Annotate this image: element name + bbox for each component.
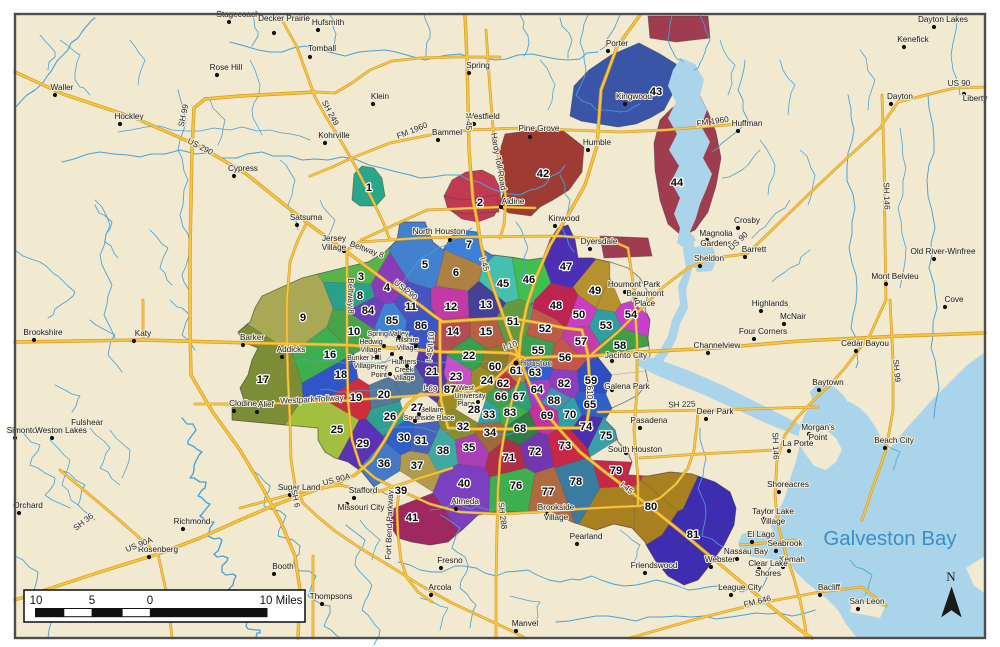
svg-text:10 Miles: 10 Miles	[260, 595, 303, 607]
svg-text:North Houston: North Houston	[413, 227, 466, 236]
svg-text:South Houston: South Houston	[608, 445, 663, 454]
svg-text:78: 78	[570, 476, 582, 488]
svg-text:Galveston Bay: Galveston Bay	[823, 527, 957, 550]
svg-text:17: 17	[257, 374, 269, 386]
svg-text:6: 6	[453, 267, 459, 279]
svg-text:Dyersdale: Dyersdale	[581, 237, 618, 246]
svg-text:16: 16	[324, 349, 336, 361]
svg-text:15: 15	[480, 326, 492, 338]
svg-text:Baytown: Baytown	[812, 378, 844, 387]
svg-text:22: 22	[463, 350, 475, 362]
svg-text:Humble: Humble	[583, 138, 612, 147]
svg-text:69: 69	[541, 410, 553, 422]
svg-text:Weston Lakes: Weston Lakes	[35, 426, 87, 435]
svg-text:76: 76	[510, 480, 522, 492]
svg-text:34: 34	[484, 427, 497, 439]
svg-text:42: 42	[537, 168, 549, 180]
svg-text:Brookside: Brookside	[538, 503, 575, 512]
svg-text:Nassau Bay: Nassau Bay	[724, 547, 769, 556]
svg-text:Beltway 8: Beltway 8	[346, 278, 355, 314]
svg-text:4: 4	[384, 282, 391, 294]
svg-text:Dayton: Dayton	[887, 92, 913, 101]
svg-text:47: 47	[560, 261, 572, 273]
svg-text:46: 46	[523, 274, 535, 286]
svg-text:Rose Hill: Rose Hill	[210, 63, 243, 72]
svg-text:Piney: Piney	[370, 364, 388, 371]
svg-text:Alief: Alief	[258, 400, 275, 409]
svg-text:Point: Point	[371, 372, 387, 379]
svg-text:El Lago: El Lago	[747, 530, 775, 539]
svg-text:Taylor Lake: Taylor Lake	[752, 507, 794, 516]
svg-text:Stafford: Stafford	[349, 486, 378, 495]
svg-text:Seabrook: Seabrook	[767, 539, 803, 548]
svg-text:88: 88	[548, 395, 560, 407]
svg-text:87: 87	[444, 384, 456, 396]
svg-text:49: 49	[589, 285, 601, 297]
svg-text:26: 26	[384, 411, 396, 423]
svg-text:18: 18	[335, 369, 347, 381]
svg-text:39: 39	[395, 485, 407, 497]
svg-text:57: 57	[575, 336, 587, 348]
svg-text:14: 14	[447, 326, 460, 338]
svg-text:West: West	[458, 385, 474, 392]
svg-text:13: 13	[480, 299, 492, 311]
svg-text:Richmond: Richmond	[174, 517, 211, 526]
svg-text:Spring: Spring	[466, 61, 490, 70]
svg-text:Cedar Bayou: Cedar Bayou	[841, 339, 889, 348]
svg-text:Barrett: Barrett	[742, 245, 767, 254]
svg-text:Pearland: Pearland	[570, 532, 603, 541]
svg-text:44: 44	[671, 177, 684, 189]
svg-text:Houmont Park: Houmont Park	[608, 280, 661, 289]
svg-text:Village: Village	[761, 517, 786, 526]
svg-text:Kenefick: Kenefick	[897, 35, 929, 44]
svg-text:72: 72	[529, 446, 541, 458]
svg-text:31: 31	[415, 435, 427, 447]
svg-text:12: 12	[445, 301, 457, 313]
svg-text:79: 79	[610, 465, 622, 477]
svg-text:SH 225: SH 225	[668, 400, 696, 410]
svg-text:63: 63	[529, 367, 541, 379]
svg-text:Morgan’s: Morgan’s	[801, 423, 835, 432]
svg-text:Southside Place: Southside Place	[404, 415, 455, 422]
svg-text:36: 36	[378, 458, 390, 470]
svg-text:Orchard: Orchard	[13, 501, 43, 510]
svg-text:50: 50	[573, 309, 585, 321]
svg-text:Channelview: Channelview	[694, 341, 741, 350]
svg-text:Porter: Porter	[606, 39, 629, 48]
svg-text:Waller: Waller	[51, 83, 74, 92]
svg-text:1: 1	[366, 182, 372, 194]
svg-text:Barker: Barker	[240, 333, 264, 342]
svg-text:Katy: Katy	[135, 329, 152, 338]
svg-text:7: 7	[466, 239, 472, 251]
svg-text:San Leon: San Leon	[849, 597, 885, 606]
svg-text:N: N	[946, 569, 956, 584]
svg-text:Pine Grove: Pine Grove	[519, 124, 560, 133]
svg-text:Beach City: Beach City	[874, 436, 914, 445]
svg-text:Decker Prairie: Decker Prairie	[258, 14, 310, 23]
svg-text:Shores: Shores	[755, 569, 781, 578]
svg-text:Village: Village	[361, 347, 382, 354]
svg-text:Satsuma: Satsuma	[290, 213, 323, 222]
svg-text:27: 27	[411, 402, 423, 414]
svg-text:Fresno: Fresno	[437, 556, 463, 565]
svg-text:Webster: Webster	[705, 555, 736, 564]
svg-text:71: 71	[503, 452, 515, 464]
svg-text:Sheldon: Sheldon	[694, 254, 724, 263]
svg-text:75: 75	[600, 430, 612, 442]
svg-text:Friendswood: Friendswood	[631, 561, 678, 570]
svg-text:53: 53	[600, 320, 612, 332]
svg-text:5: 5	[422, 259, 428, 271]
svg-text:2: 2	[477, 197, 483, 209]
svg-text:35: 35	[463, 442, 475, 454]
svg-text:Shoreacres: Shoreacres	[767, 480, 809, 489]
svg-text:64: 64	[531, 384, 544, 396]
svg-text:Village: Village	[394, 375, 415, 382]
svg-text:68: 68	[514, 423, 526, 435]
svg-text:SH 146: SH 146	[882, 182, 892, 210]
svg-text:Tomball: Tomball	[308, 44, 336, 53]
svg-text:29: 29	[357, 438, 369, 450]
svg-text:37: 37	[411, 460, 423, 472]
svg-text:54: 54	[625, 309, 638, 321]
svg-text:21: 21	[426, 366, 438, 378]
svg-text:Four Corners: Four Corners	[739, 327, 787, 336]
svg-text:Village: Village	[544, 513, 569, 522]
svg-text:52: 52	[539, 323, 551, 335]
svg-text:League City: League City	[718, 583, 763, 592]
svg-text:Point: Point	[809, 433, 828, 442]
svg-text:45: 45	[497, 278, 509, 290]
svg-text:23: 23	[450, 371, 462, 383]
svg-text:3: 3	[358, 271, 364, 283]
svg-text:58: 58	[614, 340, 626, 352]
svg-text:25: 25	[331, 424, 343, 436]
svg-text:67: 67	[513, 391, 525, 403]
svg-text:74: 74	[580, 421, 593, 433]
svg-text:28: 28	[468, 404, 480, 416]
svg-text:56: 56	[559, 352, 571, 364]
svg-text:38: 38	[437, 445, 449, 457]
svg-text:20: 20	[378, 389, 390, 401]
svg-text:32: 32	[457, 421, 469, 433]
svg-text:I-45: I-45	[464, 116, 473, 131]
svg-text:Klein: Klein	[371, 92, 390, 101]
svg-text:62: 62	[497, 378, 509, 390]
svg-text:10: 10	[348, 326, 360, 338]
svg-text:11: 11	[405, 301, 417, 313]
svg-text:Magnolia: Magnolia	[699, 229, 733, 238]
svg-text:Clodine: Clodine	[229, 399, 257, 408]
svg-text:30: 30	[398, 432, 410, 444]
svg-text:9: 9	[300, 312, 306, 324]
svg-text:Dayton Lakes: Dayton Lakes	[918, 15, 968, 24]
svg-text:Manvel: Manvel	[512, 619, 539, 628]
svg-text:77: 77	[542, 486, 554, 498]
svg-text:Cypress: Cypress	[228, 164, 258, 173]
svg-text:Cove: Cove	[944, 295, 964, 304]
svg-text:19: 19	[350, 392, 362, 404]
svg-text:Old River-Winfree: Old River-Winfree	[910, 247, 976, 256]
svg-text:65: 65	[584, 399, 596, 411]
svg-text:Crosby: Crosby	[734, 216, 761, 225]
svg-text:10: 10	[30, 595, 43, 607]
svg-text:60: 60	[489, 361, 501, 373]
svg-text:Village: Village	[322, 243, 347, 252]
svg-text:University: University	[455, 393, 486, 400]
svg-text:McNair: McNair	[780, 312, 806, 321]
svg-text:Aldine: Aldine	[502, 197, 525, 206]
svg-text:Kingwood: Kingwood	[616, 92, 652, 101]
svg-text:Deer Park: Deer Park	[697, 407, 735, 416]
svg-text:83: 83	[504, 407, 516, 419]
svg-text:86: 86	[415, 320, 427, 332]
svg-text:80: 80	[645, 501, 657, 513]
svg-text:Kinwood: Kinwood	[548, 214, 580, 223]
svg-text:Place: Place	[635, 299, 656, 308]
svg-text:Kohrville: Kohrville	[318, 131, 350, 140]
svg-text:Hunters: Hunters	[392, 359, 417, 366]
svg-text:Jersey: Jersey	[322, 234, 347, 243]
svg-text:US 90: US 90	[948, 79, 971, 88]
svg-text:73: 73	[559, 440, 571, 452]
svg-text:66: 66	[495, 391, 507, 403]
svg-text:24: 24	[481, 375, 494, 387]
svg-text:61: 61	[510, 365, 522, 377]
svg-text:Galena Park: Galena Park	[604, 382, 650, 391]
svg-text:70: 70	[564, 409, 576, 421]
svg-text:43: 43	[650, 86, 662, 98]
svg-text:Hedwig: Hedwig	[359, 339, 382, 346]
svg-text:Brookshire: Brookshire	[23, 328, 63, 337]
svg-text:59: 59	[585, 375, 597, 387]
svg-text:81: 81	[687, 529, 699, 541]
svg-text:84: 84	[362, 305, 375, 317]
svg-text:Clear Lake: Clear Lake	[748, 559, 788, 568]
svg-text:82: 82	[558, 378, 570, 390]
svg-text:Jacinto City: Jacinto City	[605, 351, 648, 360]
svg-text:Beaumont: Beaumont	[626, 289, 664, 298]
svg-text:Thompsons: Thompsons	[310, 592, 353, 601]
svg-text:40: 40	[458, 478, 470, 490]
svg-text:Hufsmith: Hufsmith	[312, 18, 345, 27]
svg-text:85: 85	[386, 315, 398, 327]
svg-text:Huffman: Huffman	[732, 119, 763, 128]
svg-text:41: 41	[406, 512, 418, 524]
svg-text:Arcola: Arcola	[428, 583, 452, 592]
svg-text:Highlands: Highlands	[752, 299, 788, 308]
svg-text:Hockley: Hockley	[114, 112, 144, 121]
svg-text:SH 146: SH 146	[771, 432, 781, 460]
svg-text:51: 51	[507, 316, 519, 328]
svg-text:33: 33	[483, 409, 495, 421]
svg-text:Bellaire: Bellaire	[420, 407, 443, 414]
svg-text:5: 5	[89, 595, 95, 607]
svg-text:8: 8	[357, 290, 363, 302]
svg-text:Bacliff: Bacliff	[818, 583, 841, 592]
svg-text:48: 48	[550, 300, 562, 312]
svg-text:Pasadena: Pasadena	[631, 416, 668, 425]
svg-text:Bammel: Bammel	[432, 128, 462, 137]
svg-text:Booth: Booth	[272, 562, 294, 571]
svg-text:Addicks: Addicks	[277, 345, 306, 354]
svg-text:0: 0	[147, 595, 153, 607]
svg-text:55: 55	[532, 345, 544, 357]
svg-text:Almeda: Almeda	[451, 497, 479, 506]
svg-text:Missouri City: Missouri City	[338, 503, 386, 512]
svg-text:Mont Belvieu: Mont Belvieu	[871, 272, 919, 281]
svg-text:Creek: Creek	[395, 367, 414, 374]
